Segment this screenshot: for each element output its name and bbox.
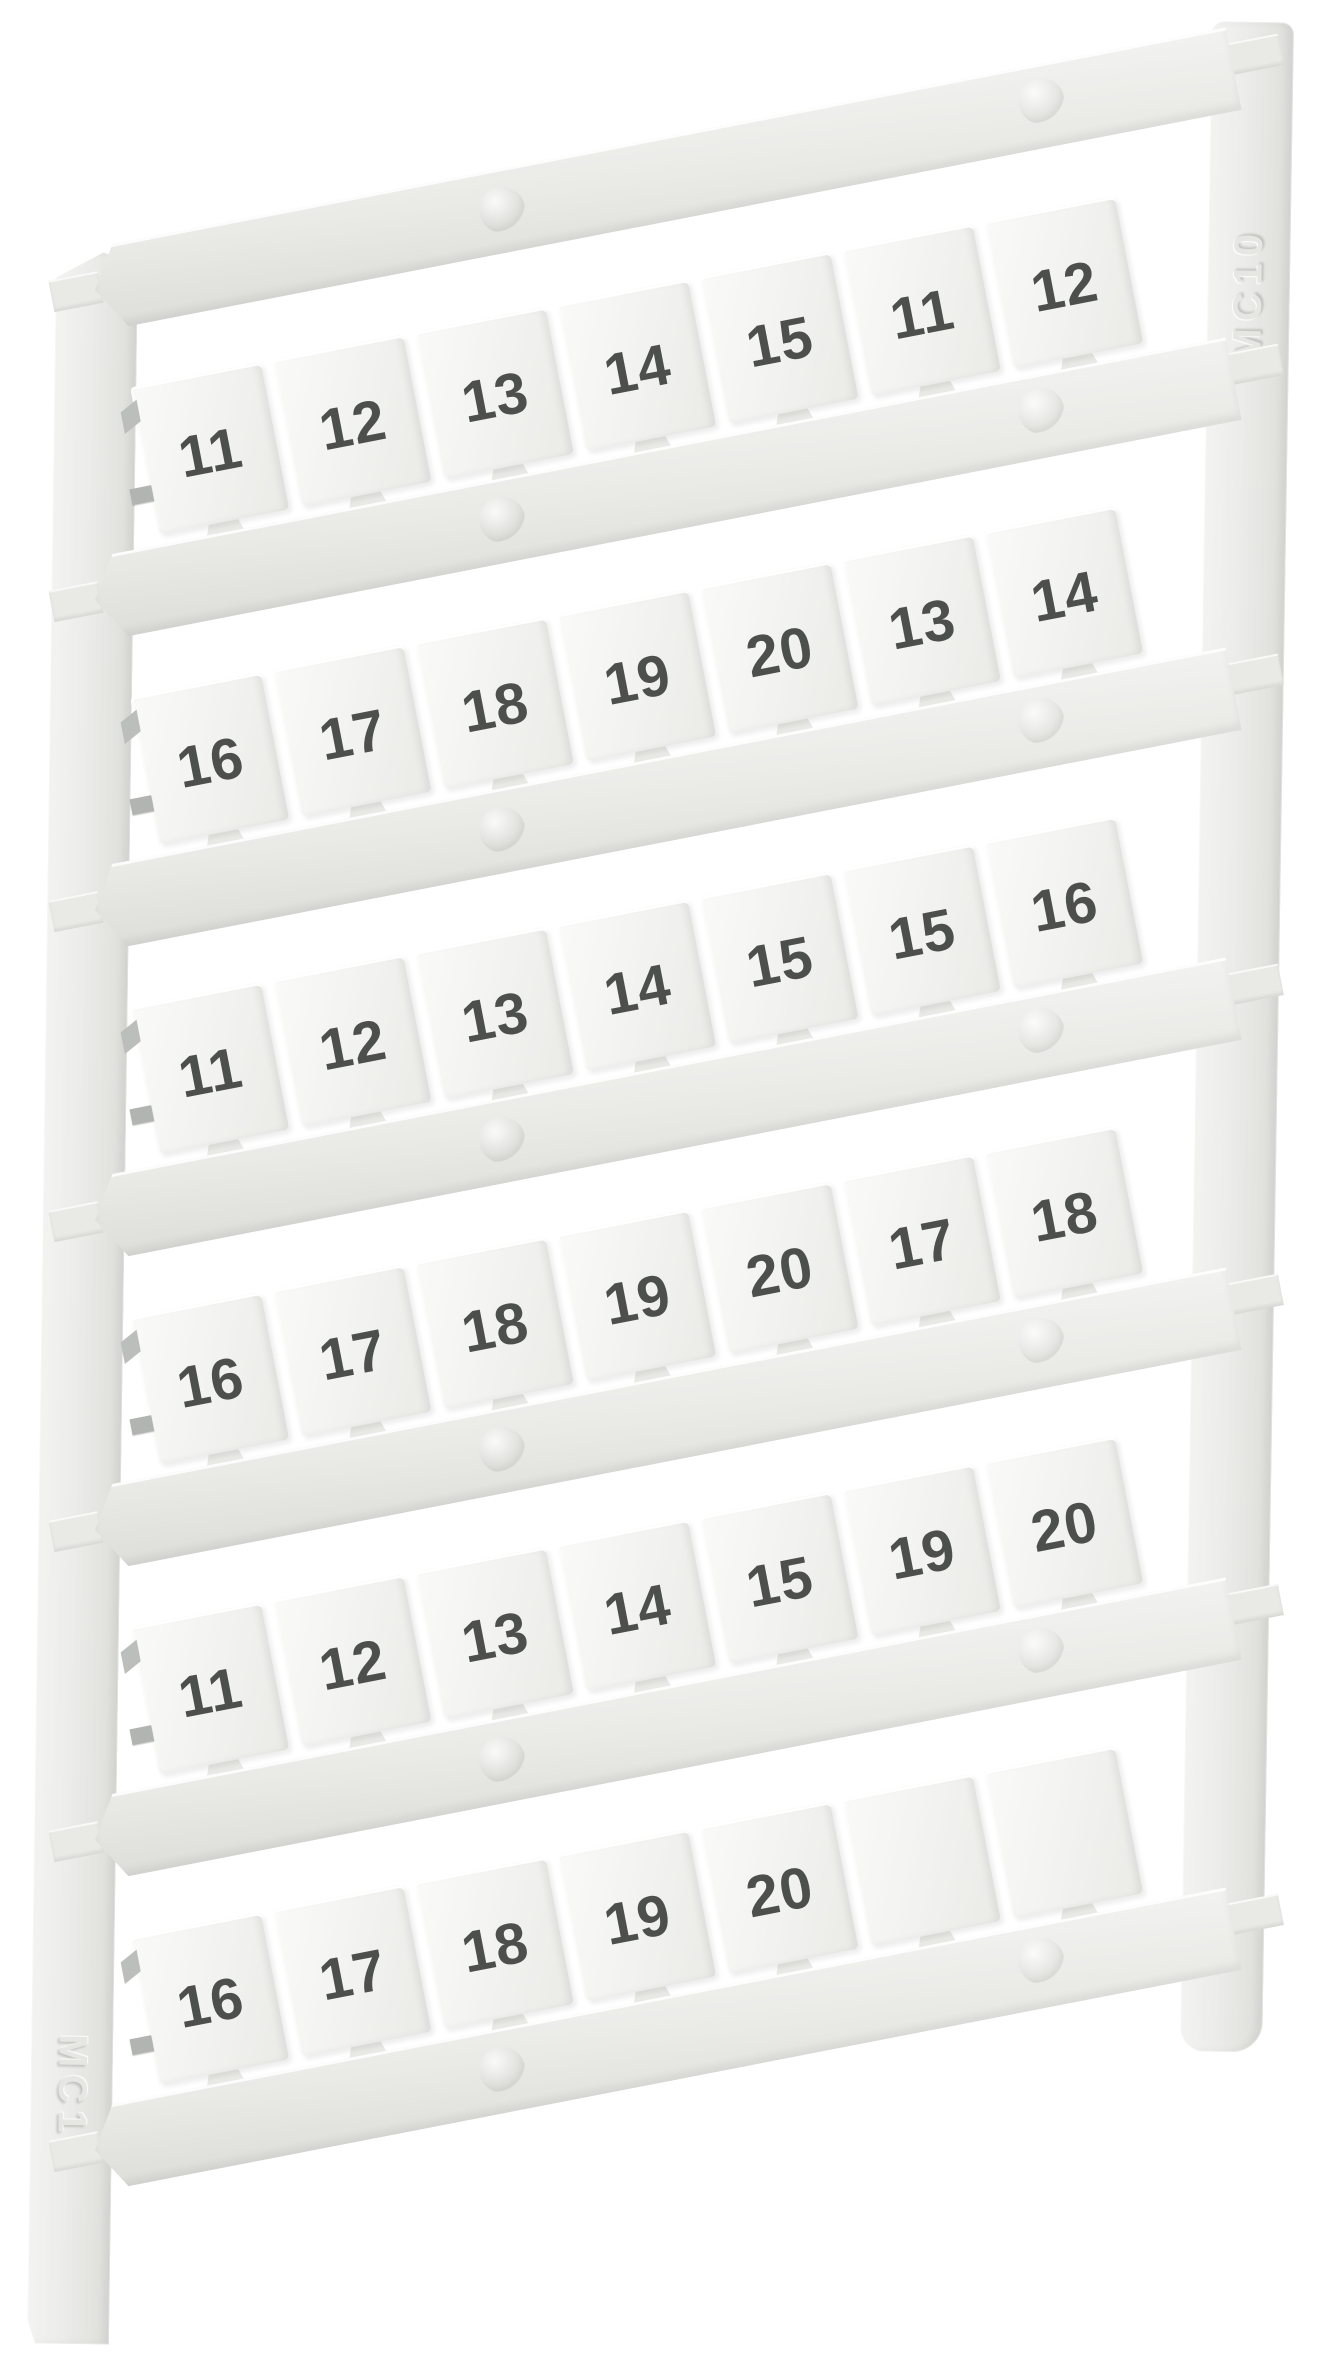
marker-tag-number: 11 (130, 1602, 289, 1775)
marker-tag: 16 (984, 816, 1143, 989)
marker-tag: 13 (842, 534, 1001, 707)
marker-tag: 13 (415, 1547, 574, 1720)
marker-tag-number: 19 (557, 589, 716, 762)
ejector-dimple (475, 493, 529, 547)
ejector-dimple (1014, 1314, 1068, 1368)
marker-tag-number: 19 (557, 1209, 716, 1382)
marker-tag: 16 (130, 1292, 289, 1465)
marker-tag-number: 13 (842, 534, 1001, 707)
marker-tag-number: 15 (699, 1491, 858, 1664)
marker-tag: 17 (272, 1884, 431, 2057)
marker-tag-number: 20 (699, 1181, 858, 1354)
marker-tag: 16 (130, 1912, 289, 2085)
marker-tag-number: 14 (557, 1519, 716, 1692)
marker-tag: 14 (557, 899, 716, 1072)
marker-tag-number: 12 (272, 1574, 431, 1747)
marker-tag: 14 (557, 1519, 716, 1692)
marker-tag: 11 (842, 224, 1001, 397)
marker-tag-number: 16 (130, 1912, 289, 2085)
ejector-dimple (1014, 74, 1068, 128)
marker-tag-number: 17 (842, 1154, 1001, 1327)
marker-tag: 14 (984, 506, 1143, 679)
ejector-dimple (475, 1733, 529, 1787)
ejector-dimple (475, 803, 529, 857)
marker-tag: 14 (557, 279, 716, 452)
marker-tag: 11 (130, 1602, 289, 1775)
marker-tag: 18 (984, 1126, 1143, 1299)
marker-tag: 18 (415, 617, 574, 790)
marker-tag-number: 15 (699, 251, 858, 424)
marker-tag: 12 (272, 1574, 431, 1747)
marker-tag-number: 14 (984, 506, 1143, 679)
marker-tag-number: 11 (130, 982, 289, 1155)
marker-tag-number: 12 (272, 954, 431, 1127)
marker-tag-number: 18 (415, 1237, 574, 1410)
marker-tag-number (984, 1746, 1143, 1919)
marker-tag: 18 (415, 1857, 574, 2030)
marker-tag: 13 (415, 307, 574, 480)
marker-tag-number: 14 (557, 899, 716, 1072)
marker-tag: 20 (984, 1436, 1143, 1609)
marker-tag: 15 (699, 251, 858, 424)
marker-tag (984, 1746, 1143, 1919)
marker-tag: 13 (415, 927, 574, 1100)
marker-tag-number: 16 (130, 672, 289, 845)
marker-tag-number: 17 (272, 644, 431, 817)
marker-tag: 15 (842, 844, 1001, 1017)
marker-tag-number: 20 (699, 561, 858, 734)
ejector-dimple (475, 1113, 529, 1167)
marker-tag-number: 19 (842, 1464, 1001, 1637)
marker-tag-number (842, 1774, 1001, 1947)
marker-tag-number: 16 (984, 816, 1143, 989)
marker-tag: 19 (557, 1209, 716, 1382)
marker-tag: 12 (984, 196, 1143, 369)
marker-tag-number: 13 (415, 927, 574, 1100)
marker-tag-number: 11 (130, 362, 289, 535)
marker-tag: 16 (130, 672, 289, 845)
marker-tag: 12 (272, 334, 431, 507)
marker-tag-number: 13 (415, 1547, 574, 1720)
ejector-dimple (1014, 694, 1068, 748)
marker-tag-number: 18 (415, 617, 574, 790)
marker-tag-number: 14 (557, 279, 716, 452)
ejector-dimple (475, 1423, 529, 1477)
marker-tag: 20 (699, 1181, 858, 1354)
marker-tag-number: 15 (842, 844, 1001, 1017)
marker-tag-number: 13 (415, 307, 574, 480)
marker-tag: 12 (272, 954, 431, 1127)
marker-tag-number: 19 (557, 1829, 716, 2002)
ejector-dimple (1014, 1934, 1068, 1988)
marker-tag-number: 12 (272, 334, 431, 507)
marker-tag: 17 (842, 1154, 1001, 1327)
marker-tag-number: 20 (984, 1436, 1143, 1609)
marker-tag: 19 (557, 1829, 716, 2002)
ejector-dimple (475, 183, 529, 237)
marker-tag-number: 16 (130, 1292, 289, 1465)
marker-tag: 20 (699, 561, 858, 734)
marker-tag: 11 (130, 982, 289, 1155)
marker-tag: 19 (842, 1464, 1001, 1637)
marker-tag: 11 (130, 362, 289, 535)
ejector-dimple (1014, 384, 1068, 438)
ejector-dimple (1014, 1004, 1068, 1058)
marker-tag: 17 (272, 644, 431, 817)
marker-sheet-photo: MC10 MC10 11 12 13 14 15 11 12 (0, 0, 1325, 2362)
marker-tag-number: 20 (699, 1801, 858, 1974)
marker-tag-number: 18 (984, 1126, 1143, 1299)
marker-tag-number: 18 (415, 1857, 574, 2030)
marker-tag-number: 17 (272, 1264, 431, 1437)
ejector-dimple (475, 2043, 529, 2097)
marker-tag: 15 (699, 1491, 858, 1664)
marker-tag-number: 12 (984, 196, 1143, 369)
marker-tag: 15 (699, 871, 858, 1044)
ejector-dimple (1014, 1624, 1068, 1678)
marker-tag-number: 11 (842, 224, 1001, 397)
marker-tag-number: 15 (699, 871, 858, 1044)
marker-tag: 20 (699, 1801, 858, 1974)
marker-tag-number: 17 (272, 1884, 431, 2057)
marker-tag: 18 (415, 1237, 574, 1410)
marker-tag: 19 (557, 589, 716, 762)
marker-tag: 17 (272, 1264, 431, 1437)
marker-tag (842, 1774, 1001, 1947)
